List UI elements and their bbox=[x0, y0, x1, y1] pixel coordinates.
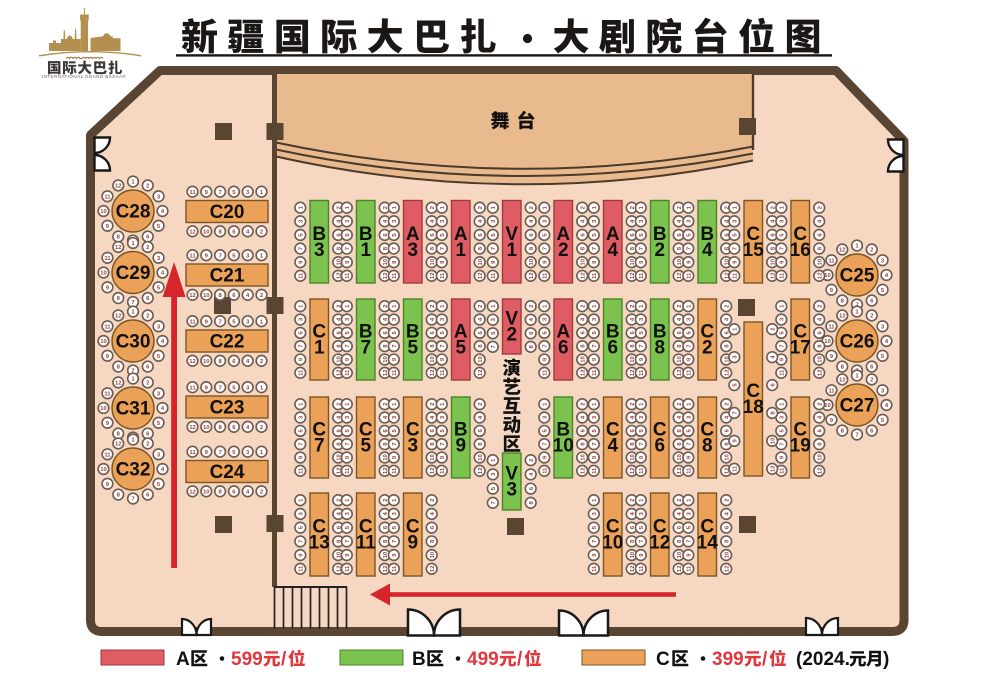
svg-text:C31: C31 bbox=[116, 399, 151, 420]
svg-text:11: 11 bbox=[345, 467, 351, 474]
svg-text:11: 11 bbox=[639, 565, 645, 572]
svg-text:C: C bbox=[656, 649, 670, 670]
svg-text:11: 11 bbox=[639, 467, 645, 474]
svg-text:10: 10 bbox=[677, 453, 683, 460]
svg-text:2: 2 bbox=[654, 240, 665, 261]
svg-text:11: 11 bbox=[542, 467, 548, 474]
svg-text:10: 10 bbox=[430, 355, 436, 362]
svg-text:12: 12 bbox=[677, 565, 683, 572]
svg-text:6: 6 bbox=[558, 338, 569, 359]
svg-text:12: 12 bbox=[115, 184, 122, 190]
svg-text:11: 11 bbox=[491, 272, 497, 279]
svg-text:11: 11 bbox=[828, 324, 835, 330]
svg-text:4: 4 bbox=[702, 240, 713, 261]
svg-text:8: 8 bbox=[654, 338, 665, 359]
svg-text:19: 19 bbox=[790, 436, 811, 457]
svg-text:11: 11 bbox=[686, 369, 692, 376]
svg-text:10: 10 bbox=[817, 453, 823, 460]
svg-text:12: 12 bbox=[770, 465, 776, 472]
svg-text:11: 11 bbox=[392, 565, 398, 572]
svg-text:10: 10 bbox=[203, 425, 210, 431]
svg-text:11: 11 bbox=[639, 369, 645, 376]
svg-text:11: 11 bbox=[104, 194, 111, 200]
svg-text:11: 11 bbox=[189, 190, 196, 196]
svg-text:/: / bbox=[762, 649, 768, 670]
svg-text:12: 12 bbox=[677, 467, 683, 474]
svg-text:10: 10 bbox=[430, 453, 436, 460]
svg-text:11: 11 bbox=[356, 533, 377, 554]
svg-text:10: 10 bbox=[203, 359, 210, 365]
svg-text:11: 11 bbox=[345, 369, 351, 376]
svg-text:13: 13 bbox=[309, 533, 330, 554]
svg-text:C27: C27 bbox=[840, 396, 875, 417]
svg-text:10: 10 bbox=[203, 489, 210, 495]
svg-text:11: 11 bbox=[189, 319, 196, 325]
svg-text:2: 2 bbox=[558, 240, 569, 261]
svg-text:/: / bbox=[517, 649, 523, 670]
svg-text:C28: C28 bbox=[116, 202, 151, 223]
svg-text:/: / bbox=[281, 649, 287, 670]
svg-text:10: 10 bbox=[529, 258, 535, 265]
svg-text:C30: C30 bbox=[116, 332, 151, 353]
svg-text:11: 11 bbox=[542, 272, 548, 279]
svg-text:10: 10 bbox=[824, 339, 831, 345]
svg-text:9: 9 bbox=[455, 436, 466, 457]
svg-text:7: 7 bbox=[314, 436, 325, 457]
svg-text:1: 1 bbox=[455, 240, 466, 261]
svg-text:11: 11 bbox=[592, 467, 598, 474]
svg-text:11: 11 bbox=[779, 272, 785, 279]
svg-text:12: 12 bbox=[677, 272, 683, 279]
svg-text:11: 11 bbox=[440, 272, 446, 279]
svg-text:9: 9 bbox=[407, 533, 418, 554]
svg-text:12: 12 bbox=[189, 293, 196, 299]
svg-text:15: 15 bbox=[743, 240, 765, 261]
svg-text:11: 11 bbox=[392, 467, 398, 474]
svg-text:10: 10 bbox=[677, 551, 683, 558]
svg-text:11: 11 bbox=[542, 369, 548, 376]
svg-text:A: A bbox=[176, 649, 190, 670]
svg-text:10: 10 bbox=[580, 355, 586, 362]
svg-text:12: 12 bbox=[580, 467, 586, 474]
svg-text:10: 10 bbox=[478, 355, 484, 362]
svg-text:11: 11 bbox=[592, 565, 598, 572]
svg-text:3: 3 bbox=[506, 480, 517, 501]
svg-text:12: 12 bbox=[189, 359, 196, 365]
svg-text:11: 11 bbox=[828, 258, 835, 264]
svg-text:C22: C22 bbox=[210, 332, 245, 353]
svg-text:10: 10 bbox=[817, 258, 823, 265]
svg-text:11: 11 bbox=[440, 467, 446, 474]
svg-text:11: 11 bbox=[828, 388, 835, 394]
svg-text:10: 10 bbox=[100, 209, 107, 215]
svg-text:12: 12 bbox=[478, 369, 484, 376]
svg-text:5: 5 bbox=[407, 338, 418, 359]
svg-text:10: 10 bbox=[724, 551, 730, 558]
svg-text:11: 11 bbox=[345, 272, 351, 279]
svg-text:7: 7 bbox=[360, 338, 371, 359]
svg-text:C29: C29 bbox=[116, 263, 151, 284]
svg-text:11: 11 bbox=[392, 369, 398, 376]
svg-text:C20: C20 bbox=[210, 202, 245, 223]
svg-text:399: 399 bbox=[712, 649, 744, 670]
svg-text:10: 10 bbox=[430, 551, 436, 558]
svg-text:12: 12 bbox=[430, 467, 436, 474]
svg-text:11: 11 bbox=[686, 272, 692, 279]
svg-text:12: 12 bbox=[677, 369, 683, 376]
svg-text:10: 10 bbox=[100, 339, 107, 345]
svg-text:1: 1 bbox=[506, 240, 517, 261]
svg-text:16: 16 bbox=[790, 240, 811, 261]
svg-text:12: 12 bbox=[580, 272, 586, 279]
svg-text:INTERNATIONAL GRAND BAZAAR: INTERNATIONAL GRAND BAZAAR bbox=[42, 74, 126, 79]
svg-text:12: 12 bbox=[430, 565, 436, 572]
svg-text:2: 2 bbox=[506, 325, 517, 346]
svg-text:12: 12 bbox=[115, 442, 122, 448]
svg-text:12: 12 bbox=[430, 369, 436, 376]
svg-text:10: 10 bbox=[770, 437, 776, 444]
svg-text:11: 11 bbox=[592, 272, 598, 279]
svg-text:12: 12 bbox=[115, 381, 122, 387]
svg-text:2: 2 bbox=[702, 338, 713, 359]
svg-text:10: 10 bbox=[203, 293, 210, 299]
svg-text:C26: C26 bbox=[840, 332, 875, 353]
svg-text:1: 1 bbox=[314, 338, 325, 359]
svg-text:12: 12 bbox=[430, 272, 436, 279]
svg-text:10: 10 bbox=[677, 355, 683, 362]
svg-text:10: 10 bbox=[430, 258, 436, 265]
svg-text:12: 12 bbox=[580, 369, 586, 376]
svg-text:3: 3 bbox=[407, 436, 418, 457]
svg-text:12: 12 bbox=[189, 425, 196, 431]
svg-text:12: 12 bbox=[529, 272, 535, 279]
svg-text:3: 3 bbox=[314, 240, 325, 261]
svg-text:11: 11 bbox=[189, 450, 196, 456]
svg-text:11: 11 bbox=[732, 465, 738, 472]
svg-text:11: 11 bbox=[440, 369, 446, 376]
svg-text:): ) bbox=[883, 649, 889, 670]
svg-text:499: 499 bbox=[467, 649, 499, 670]
svg-text:10: 10 bbox=[100, 271, 107, 277]
svg-text:10: 10 bbox=[100, 406, 107, 412]
svg-text:12: 12 bbox=[839, 378, 846, 384]
svg-text:B: B bbox=[412, 649, 426, 670]
svg-text:12: 12 bbox=[649, 533, 670, 554]
svg-text:14: 14 bbox=[697, 533, 719, 554]
svg-text:11: 11 bbox=[298, 272, 304, 279]
svg-text:C25: C25 bbox=[840, 266, 875, 287]
svg-text:11: 11 bbox=[189, 253, 196, 259]
svg-text:(2024.: (2024. bbox=[796, 649, 850, 670]
svg-text:11: 11 bbox=[686, 565, 692, 572]
svg-text:12: 12 bbox=[478, 272, 484, 279]
svg-text:11: 11 bbox=[189, 385, 196, 391]
svg-text:12: 12 bbox=[839, 314, 846, 320]
svg-text:12: 12 bbox=[817, 272, 823, 279]
svg-text:11: 11 bbox=[104, 324, 111, 330]
svg-text:10: 10 bbox=[677, 258, 683, 265]
svg-text:12: 12 bbox=[724, 565, 730, 572]
svg-text:11: 11 bbox=[298, 565, 304, 572]
svg-text:11: 11 bbox=[345, 565, 351, 572]
svg-text:11: 11 bbox=[639, 272, 645, 279]
svg-text:4: 4 bbox=[607, 240, 618, 261]
svg-text:1: 1 bbox=[360, 240, 371, 261]
svg-text:10: 10 bbox=[203, 229, 210, 235]
svg-text:10: 10 bbox=[817, 355, 823, 362]
svg-text:11: 11 bbox=[104, 256, 111, 262]
svg-text:3: 3 bbox=[407, 240, 418, 261]
svg-text:18: 18 bbox=[743, 397, 764, 418]
svg-text:C24: C24 bbox=[210, 462, 245, 483]
svg-text:12: 12 bbox=[189, 489, 196, 495]
svg-text:C23: C23 bbox=[210, 398, 245, 419]
svg-text:11: 11 bbox=[592, 369, 598, 376]
svg-text:12: 12 bbox=[115, 314, 122, 320]
svg-text:11: 11 bbox=[298, 467, 304, 474]
svg-text:10: 10 bbox=[724, 453, 730, 460]
svg-text:10: 10 bbox=[478, 258, 484, 265]
svg-text:11: 11 bbox=[779, 369, 785, 376]
svg-text:12: 12 bbox=[189, 229, 196, 235]
svg-text:C32: C32 bbox=[116, 460, 151, 481]
svg-text:11: 11 bbox=[104, 452, 111, 458]
svg-text:4: 4 bbox=[607, 436, 618, 457]
svg-text:10: 10 bbox=[478, 453, 484, 460]
svg-text:12: 12 bbox=[478, 467, 484, 474]
svg-text:6: 6 bbox=[654, 436, 665, 457]
svg-text:599: 599 bbox=[231, 649, 263, 670]
svg-text:11: 11 bbox=[779, 467, 785, 474]
svg-text:10: 10 bbox=[602, 533, 623, 554]
svg-text:12: 12 bbox=[724, 369, 730, 376]
svg-text:11: 11 bbox=[104, 391, 111, 397]
svg-text:10: 10 bbox=[580, 453, 586, 460]
svg-text:12: 12 bbox=[115, 245, 122, 251]
svg-text:11: 11 bbox=[732, 272, 738, 279]
svg-text:C21: C21 bbox=[210, 266, 245, 287]
svg-text:11: 11 bbox=[392, 272, 398, 279]
svg-text:10: 10 bbox=[100, 467, 107, 473]
svg-text:5: 5 bbox=[360, 436, 371, 457]
svg-text:17: 17 bbox=[790, 338, 811, 359]
svg-text:11: 11 bbox=[298, 369, 304, 376]
svg-text:5: 5 bbox=[455, 338, 466, 359]
svg-text:6: 6 bbox=[607, 338, 618, 359]
svg-text:12: 12 bbox=[839, 248, 846, 254]
svg-text:10: 10 bbox=[580, 258, 586, 265]
svg-text:11: 11 bbox=[686, 467, 692, 474]
svg-text:12: 12 bbox=[817, 467, 823, 474]
svg-text:8: 8 bbox=[702, 436, 713, 457]
svg-text:12: 12 bbox=[817, 369, 823, 376]
svg-text:10: 10 bbox=[553, 436, 574, 457]
